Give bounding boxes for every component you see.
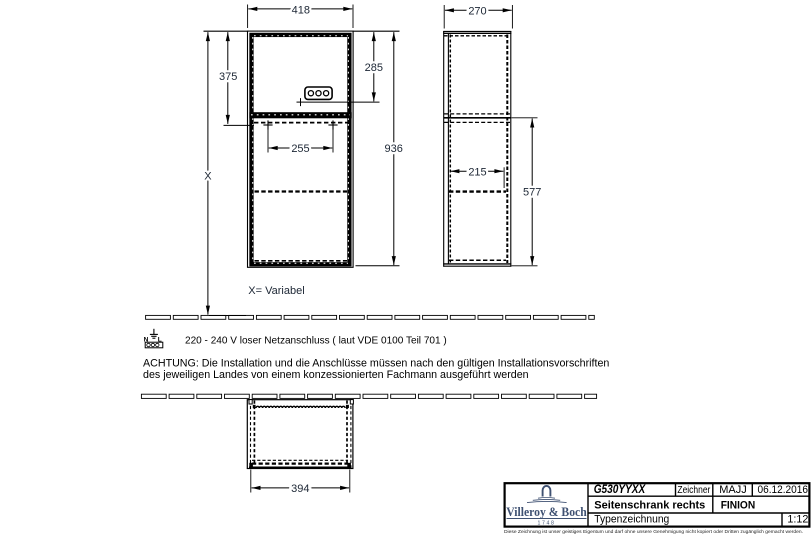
- svg-text:285: 285: [365, 62, 383, 74]
- svg-text:1748: 1748: [538, 520, 556, 526]
- svg-text:375: 375: [219, 71, 237, 83]
- svg-text:FINION: FINION: [721, 500, 756, 512]
- svg-text:Typenzeichnung: Typenzeichnung: [594, 513, 669, 525]
- svg-text:270: 270: [468, 6, 486, 18]
- svg-text:G530YYXX: G530YYXX: [594, 484, 647, 496]
- svg-text:des jeweiligen Landes von eine: des jeweiligen Landes von einem konzessi…: [143, 369, 529, 381]
- svg-text:215: 215: [468, 166, 486, 178]
- svg-text:255: 255: [291, 143, 309, 155]
- svg-text:936: 936: [385, 143, 403, 155]
- svg-text:577: 577: [523, 186, 541, 198]
- svg-text:Villeroy & Boch: Villeroy & Boch: [506, 505, 587, 519]
- svg-text:06.12.2016: 06.12.2016: [758, 484, 809, 496]
- svg-text:Diese Zeichnung ist unser geis: Diese Zeichnung ist unser geistiges Eige…: [504, 529, 803, 534]
- svg-text:418: 418: [292, 5, 310, 17]
- svg-text:Zeichner: Zeichner: [677, 484, 710, 496]
- svg-text:220 - 240 V loser Netzanschlus: 220 - 240 V loser Netzanschluss ( laut V…: [185, 336, 447, 347]
- svg-text:X: X: [204, 171, 212, 183]
- svg-text:1:12: 1:12: [787, 513, 808, 525]
- svg-text:Seitenschrank rechts: Seitenschrank rechts: [594, 500, 705, 512]
- svg-text:394: 394: [291, 483, 309, 495]
- svg-text:X= Variabel: X= Variabel: [248, 285, 304, 297]
- svg-text:ACHTUNG: Die Installation und: ACHTUNG: Die Installation und die Anschl…: [143, 357, 609, 369]
- svg-text:MAJJ: MAJJ: [719, 484, 747, 496]
